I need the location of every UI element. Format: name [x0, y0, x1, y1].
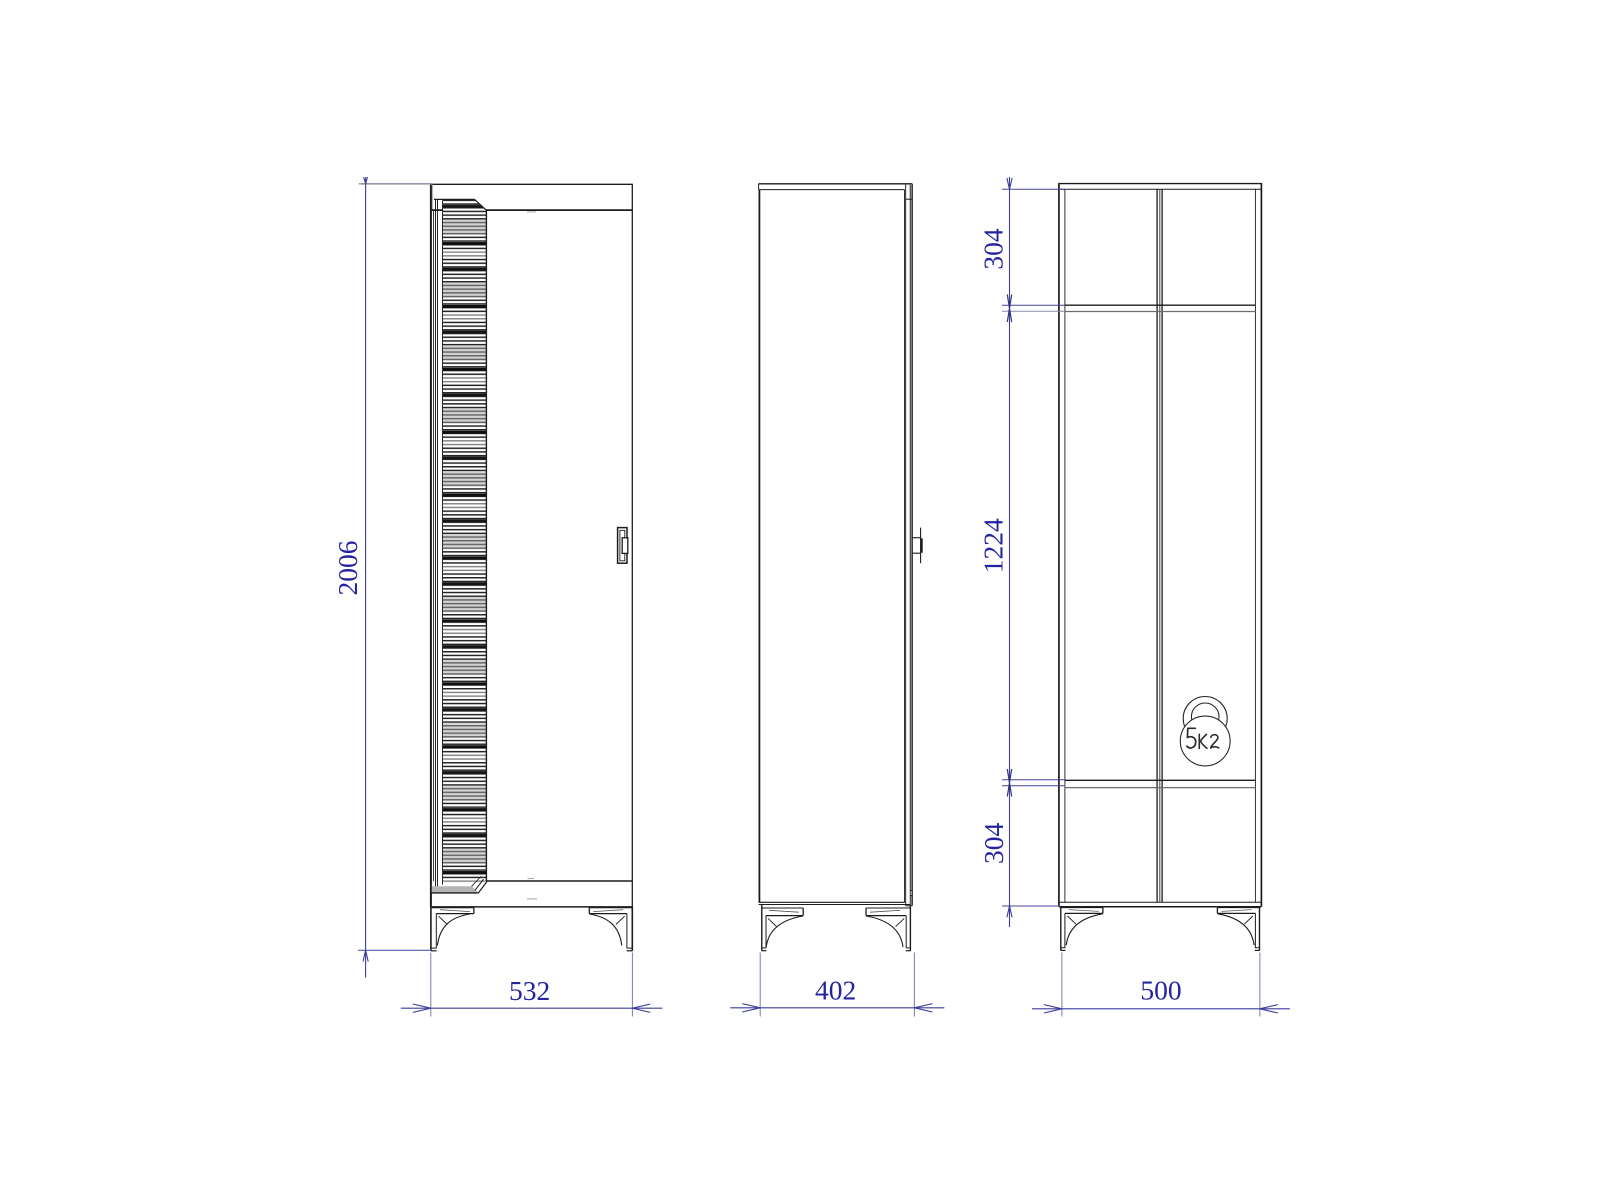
svg-text:402: 402 — [815, 974, 856, 1005]
svg-text:304: 304 — [978, 822, 1009, 864]
svg-text:500: 500 — [1140, 974, 1181, 1005]
svg-text:304: 304 — [978, 228, 1009, 270]
svg-text:1224: 1224 — [977, 518, 1008, 573]
svg-text:2006: 2006 — [332, 541, 363, 596]
svg-text:532: 532 — [509, 975, 550, 1006]
